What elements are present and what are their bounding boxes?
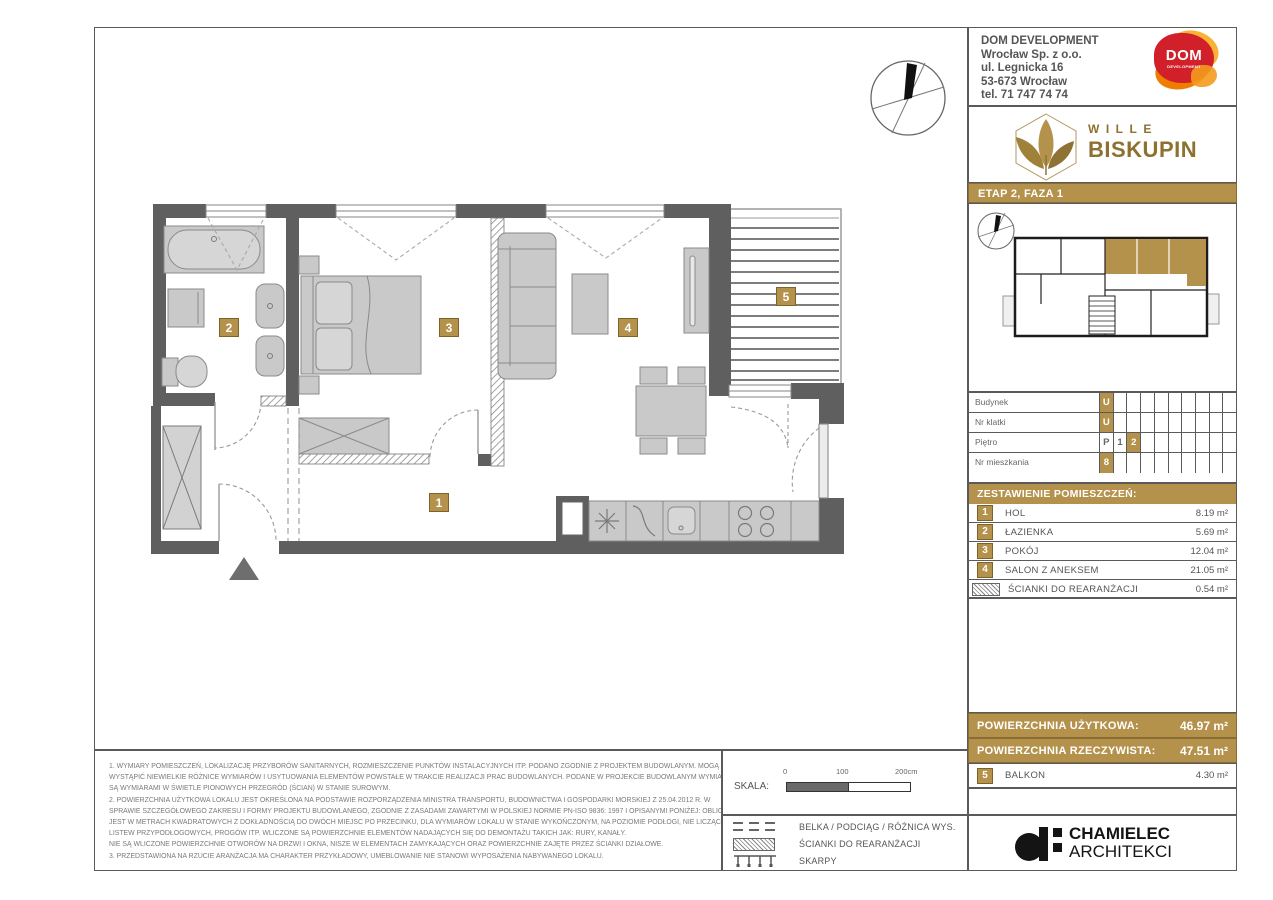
mini-building-plan [1001, 232, 1221, 344]
architect-name-line1: CHAMIELEC [1069, 825, 1172, 843]
miniplan-box [968, 203, 1237, 392]
unit-row-label: Piętro [969, 433, 1099, 452]
room-area: 12.04 m² [1191, 546, 1229, 557]
room-name: ŚCIANKI DO REARANŻACJI [1008, 584, 1138, 595]
legend-item-partitions: ŚCIANKI DO REARANŻACJI [733, 836, 920, 852]
room-badge-salon: 4 [618, 318, 638, 337]
company-phone: tel. 71 747 74 74 [981, 89, 1099, 103]
room-num-badge: 4 [977, 562, 993, 578]
room-badge-pokoj: 3 [439, 318, 459, 337]
scale-tick-0: 0 [783, 767, 787, 776]
note-line: 2. POWIERZCHNIA UŻYTKOWA LOKALU JEST OKR… [109, 795, 721, 806]
room-row-hol: 1 HOL 8.19 m² [969, 504, 1236, 523]
room-row-lazienka: 2 ŁAZIENKA 5.69 m² [969, 523, 1236, 542]
scale-tick-100: 100 [836, 767, 849, 776]
hatch-swatch-icon [733, 838, 785, 851]
legend-label: BELKA / PODCIĄG / RÓŻNICA WYS. [799, 822, 956, 832]
real-area-value: 47.51 m² [1180, 744, 1236, 758]
unit-cell: 2 [1126, 433, 1140, 452]
legend-item-slopes: SKARPY [733, 853, 837, 869]
rooms-header: ZESTAWIENIE POMIESZCZEŃ: [969, 484, 1236, 504]
legend-item-beam: BELKA / PODCIĄG / RÓŻNICA WYS. [733, 819, 956, 835]
scale-tick-200: 200cm [895, 767, 918, 776]
brand-word-biskupin: BISKUPIN [1088, 137, 1197, 163]
scale-bar-dark [786, 782, 850, 792]
rooms-box: ZESTAWIENIE POMIESZCZEŃ: 1 HOL 8.19 m² 2… [968, 483, 1237, 598]
unit-cell: U [1099, 393, 1113, 412]
note-line: SPRAWIE SZCZEGÓŁOWEGO ZAKRESU I FORMY PR… [109, 806, 721, 817]
room-name: BALKON [1005, 770, 1045, 781]
notes-box: 1. WYMIARY POMIESZCZEŃ, LOKALIZACJĘ PRZY… [94, 750, 722, 871]
hatch-swatch-icon [972, 583, 1000, 596]
note-line: NIE SĄ WLICZONE POWIERZCHNIE OTWORÓW NA … [109, 839, 721, 850]
note-line: 3. PRZEDSTAWIONA NA RZUCIE ARANŻACJA MA … [109, 851, 721, 862]
unit-row-budynek: Budynek U [969, 393, 1236, 413]
note-line: SĄ WYMIARAMI W ŚWIETLE PIONOWYCH PRZEGRÓ… [109, 783, 721, 794]
legend-box: BELKA / PODCIĄG / RÓŻNICA WYS. ŚCIANKI D… [722, 815, 968, 871]
balcony-row: 5 BALKON 4.30 m² [968, 763, 1237, 788]
beam-dashes-icon [733, 821, 785, 833]
dom-logo-text: DOM [1154, 47, 1214, 64]
scale-label: SKALA: [734, 781, 769, 792]
note-line: WYSTĄPIĆ NIEWIELKIE RÓŻNICE WYMIARÓW I U… [109, 772, 721, 783]
floor-plan-drawing [151, 196, 851, 581]
company-name: DOM DEVELOPMENT [981, 35, 1099, 49]
unit-row-label: Nr mieszkania [969, 453, 1099, 473]
unit-cell: 1 [1113, 433, 1127, 452]
usable-area-value: 46.97 m² [1180, 719, 1236, 733]
floor-plan-sheet: 1 2 3 4 5 1. WYMIARY POMIESZCZEŃ, LOKALI… [0, 0, 1273, 900]
room-row-pokoj: 3 POKÓJ 12.04 m² [969, 542, 1236, 561]
brand-name: WILLE BISKUPIN [1088, 122, 1197, 163]
brand-word-wille: WILLE [1088, 122, 1197, 136]
scale-box: SKALA: 0 100 200cm [722, 750, 968, 815]
room-name: SALON Z ANEKSEM [1005, 565, 1099, 576]
architect-name: CHAMIELEC ARCHITEKCI [1069, 825, 1172, 861]
note-line: 1. WYMIARY POMIESZCZEŃ, LOKALIZACJĘ PRZY… [109, 761, 721, 772]
unit-info-table: Budynek U Nr klatki U Piętro P 1 2 Nr mi… [968, 392, 1237, 483]
architect-logo-icon [1013, 824, 1065, 864]
empty-box [968, 598, 1237, 713]
note-line: JEST W METRACH KWADRATOWYCH Z DOKŁADNOŚC… [109, 817, 721, 828]
stairwell [1089, 296, 1115, 334]
unit-row-klatka: Nr klatki U [969, 413, 1236, 433]
room-badge-lazienka: 2 [219, 318, 239, 337]
room-row-salon: 4 SALON Z ANEKSEM 21.05 m² [969, 561, 1236, 580]
company-box: DOM DEVELOPMENT Wrocław Sp. z o.o. ul. L… [968, 27, 1237, 106]
company-address-line: 53-673 Wrocław [981, 76, 1099, 90]
legend-label: SKARPY [799, 856, 837, 866]
compass-icon [863, 53, 953, 143]
unit-cell: 8 [1099, 453, 1113, 473]
legend-label: ŚCIANKI DO REARANŻACJI [799, 839, 920, 849]
company-address: DOM DEVELOPMENT Wrocław Sp. z o.o. ul. L… [981, 35, 1099, 103]
architect-name-line2: ARCHITEKCI [1069, 843, 1172, 861]
room-area: 4.30 m² [1196, 770, 1228, 781]
entrance-arrow-icon [229, 557, 259, 580]
unit-cell: P [1099, 433, 1113, 452]
room-name: HOL [1005, 508, 1025, 519]
unit-row-label: Nr klatki [969, 413, 1099, 432]
usable-area-label: POWIERZCHNIA UŻYTKOWA: [969, 720, 1139, 732]
real-area-label: POWIERZCHNIA RZECZYWISTA: [969, 745, 1156, 757]
room-num-badge: 2 [977, 524, 993, 540]
unit-row-label: Budynek [969, 393, 1099, 412]
unit-row-pietro: Piętro P 1 2 [969, 433, 1236, 453]
room-num-badge: 3 [977, 543, 993, 559]
plan-area: 1 2 3 4 5 [94, 27, 968, 750]
slope-ticks-icon [733, 854, 785, 868]
room-badge-hol: 1 [429, 493, 449, 512]
wille-biskupin-logo-icon [1006, 111, 1086, 181]
room-name: ŁAZIENKA [1005, 527, 1053, 538]
architect-box: CHAMIELEC ARCHITEKCI [968, 815, 1237, 871]
note-line: LISTEW PRZYPODŁOGOWYCH, PROGÓW ITP. WLIC… [109, 828, 721, 839]
unit-row-mieszkanie: Nr mieszkania 8 [969, 453, 1236, 473]
phase-bar: ETAP 2, FAZA 1 [968, 183, 1237, 203]
unit-cell: U [1099, 413, 1113, 432]
room-name: POKÓJ [1005, 546, 1039, 557]
real-area-bar: POWIERZCHNIA RZECZYWISTA: 47.51 m² [968, 738, 1237, 763]
room-area: 8.19 m² [1196, 508, 1228, 519]
room-num-badge: 5 [977, 768, 993, 784]
empty-box [968, 788, 1237, 815]
company-address-line: ul. Legnicka 16 [981, 62, 1099, 76]
room-num-badge: 1 [977, 505, 993, 521]
room-area: 0.54 m² [1196, 584, 1228, 595]
room-area: 5.69 m² [1196, 527, 1228, 538]
scale-bar-light [848, 782, 911, 792]
room-row-scianki: ŚCIANKI DO REARANŻACJI 0.54 m² [969, 580, 1236, 599]
dom-logo-subtext: DEVELOPMENT [1154, 64, 1214, 69]
company-address-line: Wrocław Sp. z o.o. [981, 49, 1099, 63]
usable-area-bar: POWIERZCHNIA UŻYTKOWA: 46.97 m² [968, 713, 1237, 738]
room-badge-balkon: 5 [776, 287, 796, 306]
brand-box: WILLE BISKUPIN [968, 106, 1237, 183]
dom-development-logo-icon: DOM DEVELOPMENT [1153, 31, 1225, 93]
room-area: 21.05 m² [1191, 565, 1229, 576]
